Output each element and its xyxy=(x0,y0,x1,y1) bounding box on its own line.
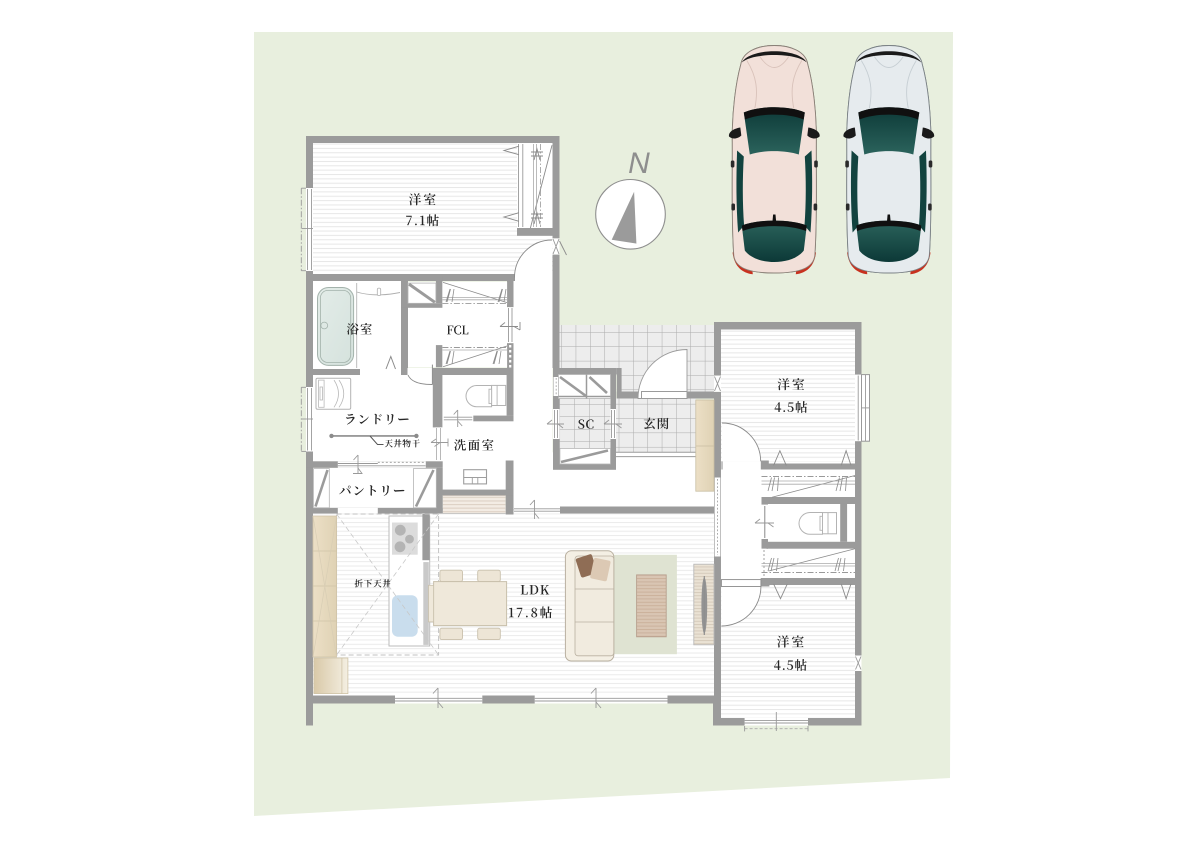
svg-text:N: N xyxy=(628,147,650,180)
